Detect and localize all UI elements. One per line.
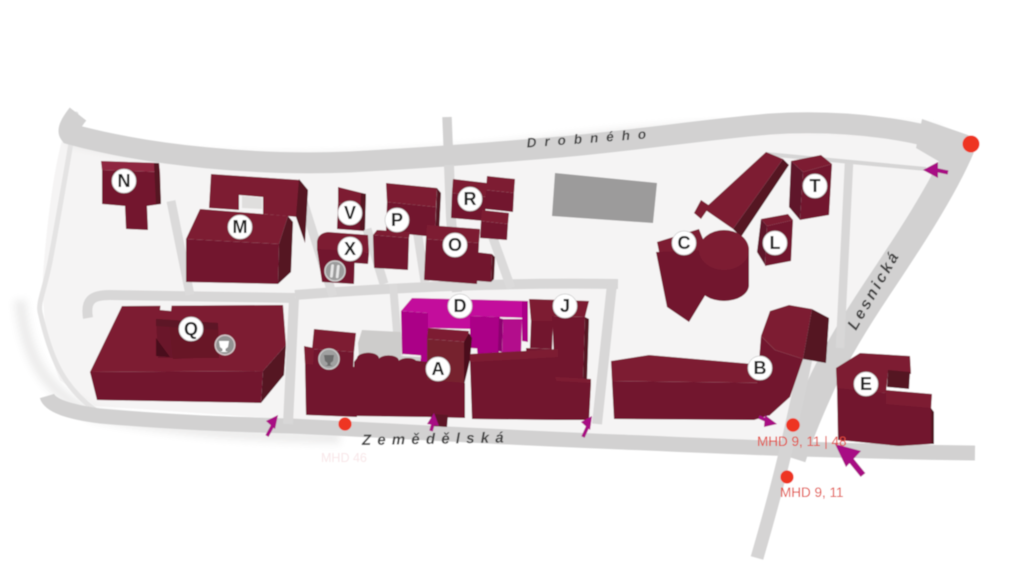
svg-text:P: P	[391, 210, 403, 230]
svg-text:B: B	[754, 358, 767, 378]
svg-text:T: T	[810, 176, 821, 196]
svg-text:R: R	[464, 189, 477, 209]
svg-text:O: O	[448, 235, 462, 255]
svg-text:Zemědělská: Zemědělská	[361, 429, 510, 449]
svg-text:C: C	[678, 233, 691, 253]
svg-text:MHD 46: MHD 46	[321, 451, 367, 465]
svg-text:N: N	[118, 171, 131, 191]
svg-text:Q: Q	[184, 319, 198, 339]
svg-text:MHD 9, 11: MHD 9, 11	[780, 485, 844, 500]
svg-text:E: E	[860, 374, 872, 394]
svg-text:MHD 9, 11 | 48: MHD 9, 11 | 48	[757, 434, 847, 449]
svg-text:L: L	[770, 233, 781, 253]
svg-text:A: A	[432, 359, 445, 379]
svg-text:J: J	[560, 296, 570, 316]
svg-text:X: X	[344, 239, 356, 259]
svg-text:M: M	[233, 217, 248, 237]
svg-text:D: D	[454, 296, 467, 316]
svg-text:V: V	[344, 203, 356, 223]
